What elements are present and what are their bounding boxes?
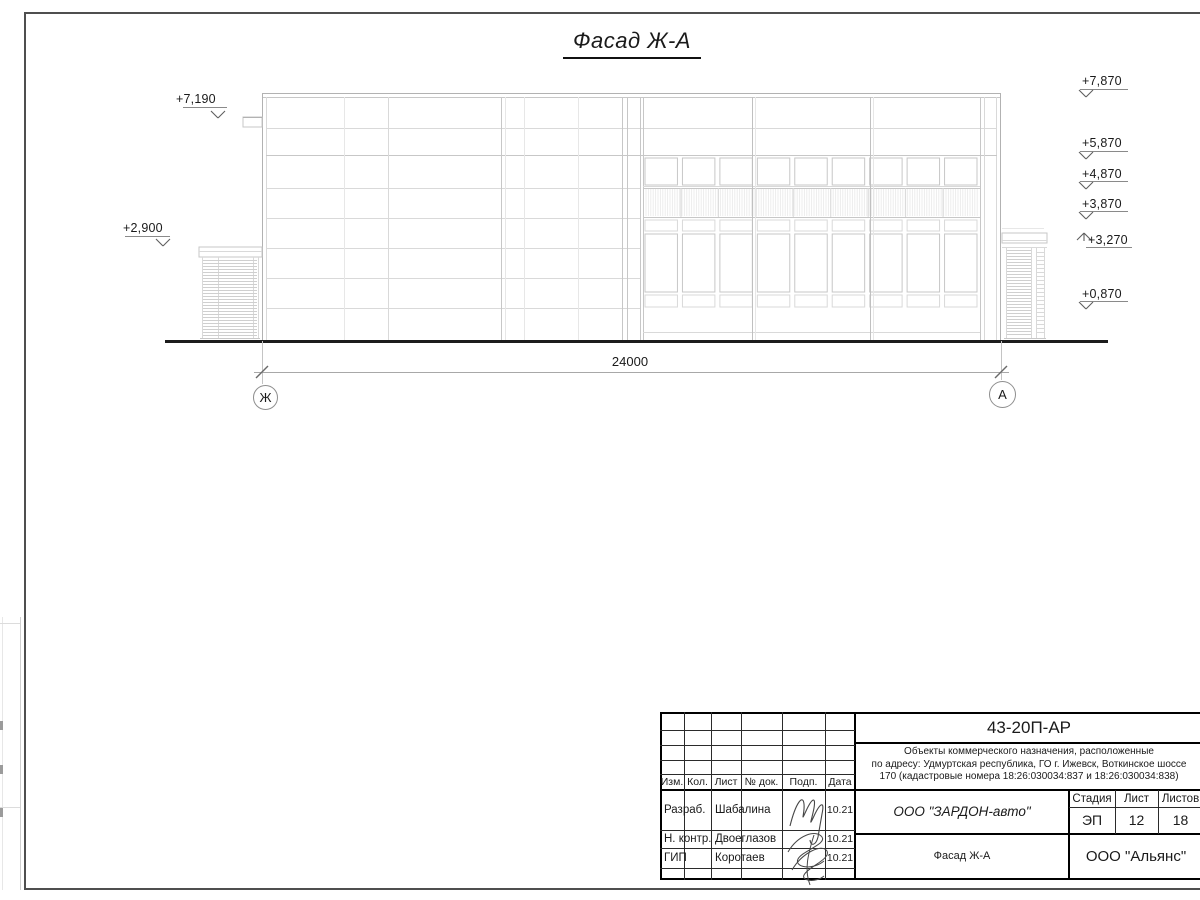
row-name: Коротаев: [715, 848, 765, 868]
sheet-label: Лист: [1115, 791, 1158, 807]
col-header-doc: № док.: [741, 774, 782, 790]
col-header-list: Лист: [711, 774, 741, 790]
title-block: Изм. Кол. Лист № док. Подп. Дата Разраб.…: [0, 0, 1200, 900]
row-role: Разраб.: [664, 790, 705, 830]
col-header-kol: Кол.: [684, 774, 711, 790]
project-line: Объекты коммерческого назначения, распол…: [855, 746, 1200, 759]
sheet-value: 12: [1115, 807, 1158, 834]
stage-label: Стадия: [1069, 791, 1115, 807]
sheet-title: Фасад Ж-А: [855, 834, 1069, 879]
firm-name: ООО "Альянс": [1069, 834, 1200, 879]
col-header-izm: Изм.: [660, 774, 684, 790]
row-name: Двоеглазов: [715, 830, 776, 848]
company-name: ООО "ЗАРДОН-авто": [855, 790, 1069, 834]
doc-code: 43-20П-АР: [855, 714, 1200, 742]
project-line: по адресу: Удмуртская республика, ГО г. …: [855, 759, 1200, 772]
row-name: Шабалина: [715, 790, 771, 830]
drawing-sheet: { "drawing": { "title": "Фасад Ж-А", "di…: [0, 0, 1200, 900]
row-role: Н. контр.: [664, 830, 711, 848]
project-description: Объекты коммерческого назначения, распол…: [855, 746, 1200, 784]
project-line: 170 (кадастровые номера 18:26:030034:837…: [855, 771, 1200, 784]
stage-value: ЭП: [1069, 807, 1115, 834]
sheets-label: Листов: [1158, 791, 1200, 807]
signature-icon: [780, 788, 840, 888]
sheets-value: 18: [1158, 807, 1200, 834]
row-role: ГИП: [664, 848, 687, 868]
